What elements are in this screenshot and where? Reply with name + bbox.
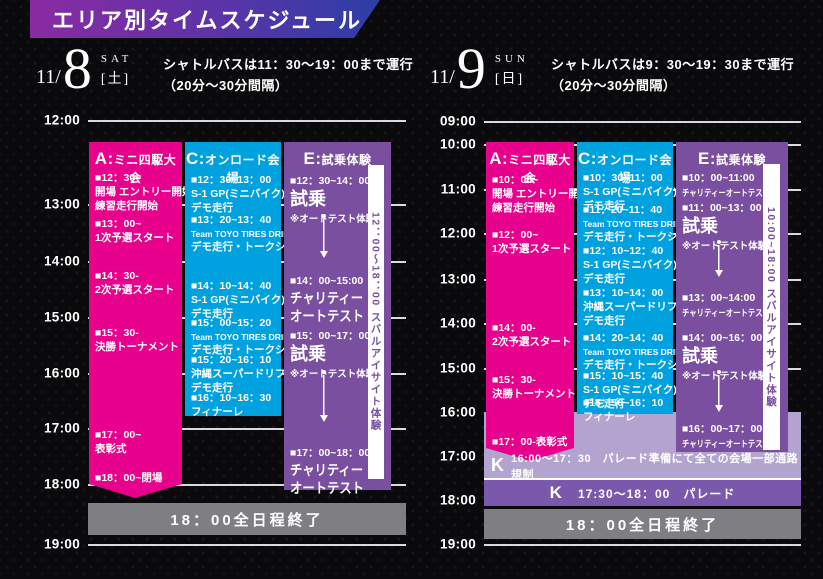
event: ■10：00~11:00チャリティーオートテスト	[682, 170, 762, 199]
shuttle-line1: シャトルバスは9：30～19：30まで運行	[551, 54, 794, 75]
subaru-eyesight-strip-sun: 10:00~18:00 スバルアイサイト体験	[763, 164, 780, 450]
area-a-column-sat: A:ミニ四駆大会 ■12：30~開場 エントリー開始 練習走行開始 ■13：00…	[89, 142, 182, 484]
event-time: ■17：00-表彰式	[492, 434, 570, 449]
grid-line	[484, 121, 801, 123]
event: ■13：00~14:00チャリティーオートテスト	[682, 290, 762, 319]
event-time: ■10：00~11:00	[682, 170, 762, 185]
event: ■17：00~18：00チャリティー オートテスト	[290, 445, 365, 497]
event-desc-en: Team TOYO TIRES DRIFT	[583, 218, 669, 231]
event: ■14：20~14：40Team TOYO TIRES DRIFTデモ走行・トー…	[583, 330, 669, 373]
footer-text: 18：00全日程終了	[170, 509, 323, 530]
down-arrow-icon	[712, 370, 726, 412]
grid-line	[484, 544, 801, 546]
event-time: ■13：10~14：00	[583, 285, 669, 300]
event-time: ■14：20~14：40	[583, 330, 669, 345]
subaru-eyesight-strip-sat: 12：00～18：00 スバルアイサイト体験	[368, 165, 384, 479]
event-desc-en: Team TOYO TIRES DRIFT	[191, 228, 277, 241]
hour-label: 13:00	[30, 197, 80, 212]
event-time: ■15：30-	[492, 372, 570, 387]
event-desc: S-1 GP(ミニバイク) デモ走行	[583, 259, 669, 287]
event-title: 試乗	[290, 344, 365, 366]
event-title: 試乗	[290, 189, 365, 211]
event-desc: 表彰式	[95, 443, 178, 457]
dow-en: SAT	[101, 53, 133, 65]
event-title: 試乗	[682, 216, 762, 238]
date-number: 9	[457, 46, 486, 92]
event-desc: 決勝トーナメント	[95, 341, 178, 355]
event: ■12：30~13：00S-1 GP(ミニバイク) デモ走行	[191, 172, 277, 216]
event: ■15：30-決勝トーナメント	[95, 325, 178, 355]
hour-label: 17:00	[30, 421, 80, 436]
event-time: ■14：00~15:00	[290, 273, 365, 288]
event-desc: 決勝トーナメント	[492, 388, 570, 402]
event-time: ■14：10~14：40	[191, 278, 277, 293]
event-desc-en: Team TOYO TIRES DRIFT	[583, 346, 669, 359]
event-desc: 沖縄スーパードリフト デモ走行	[583, 301, 669, 329]
down-arrow-icon	[712, 240, 726, 277]
area-letter: A:	[95, 149, 114, 168]
event-title: チャリティー オートテスト	[290, 461, 356, 497]
k-parade-text: 17:30～18：00 パレード	[578, 485, 735, 502]
event: ■13：10~14：00沖縄スーパードリフト デモ走行	[583, 285, 669, 329]
footer-text: 18：00全日程終了	[566, 514, 719, 535]
event: ■12：10~12：40S-1 GP(ミニバイク) デモ走行	[583, 243, 669, 287]
event-time: ■12：00~	[492, 227, 570, 242]
event: ■14：30-2次予選スタート	[95, 268, 178, 298]
event-time: ■18：00~閉場	[95, 470, 178, 485]
shuttle-note-sun: シャトルバスは9：30～19：30まで運行 （20分～30分間隔）	[551, 54, 794, 97]
hour-label: 18:00	[426, 493, 476, 508]
event-time: ■15：30-	[95, 325, 178, 340]
area-e-column-sun: E:試乗体験 ■10：00~11:00チャリティーオートテスト ■11：00~1…	[676, 142, 788, 452]
dow-en: SUN	[495, 53, 529, 65]
date-sun: 11/ 9 SUN [日]	[430, 46, 529, 92]
down-arrow-icon	[317, 370, 331, 422]
k-letter: K	[491, 455, 504, 476]
shuttle-line2: （20分～30分間隔）	[551, 75, 794, 96]
day-of-week: SUN [日]	[495, 53, 529, 88]
hour-label: 12:00	[426, 226, 476, 241]
footer-bar-sun: 18：00全日程終了	[484, 509, 801, 539]
event-time: ■15：00~15：20	[191, 315, 277, 330]
hour-label: 16:00	[30, 366, 80, 381]
day-of-week: SAT [土]	[101, 53, 133, 88]
event-desc: チャリティーオートテスト	[682, 186, 748, 199]
event-desc: 1次予選スタート	[95, 232, 178, 246]
area-e-column-sat: E:試乗体験 ■12：30~14：00試乗※オートテスト体験 ■14：00~15…	[284, 142, 391, 490]
event-time: ■14：00-	[492, 320, 570, 335]
hour-label: 10:00	[426, 137, 476, 152]
hour-label: 16:00	[426, 405, 476, 420]
dow-jp: [土]	[101, 68, 133, 88]
event-time: ■16：10~16：30	[191, 390, 277, 405]
grid-line	[88, 120, 406, 122]
event-time: ■17：00~	[95, 427, 178, 442]
title-banner: エリア別タイムスケジュール	[30, 0, 380, 38]
event-time: ■12：30~	[95, 170, 178, 185]
event-desc: デモ走行・トークショー	[191, 241, 277, 255]
event-desc: フィナーレ	[191, 406, 277, 420]
area-name: 試乗体験	[716, 153, 766, 167]
event-desc: 開場 エントリー開始 練習走行開始	[492, 188, 570, 216]
grid-line	[88, 544, 406, 546]
down-arrow-icon	[317, 214, 331, 258]
event-time: ■13：20~13：40	[191, 212, 277, 227]
event-time: ■10：30~11：00	[583, 170, 669, 185]
event-desc: 1次予選スタート	[492, 243, 570, 257]
area-letter: E:	[698, 149, 716, 168]
hour-label: 09:00	[426, 114, 476, 129]
event-time: ■13：00~14:00	[682, 290, 762, 305]
event-time: ■11：00~13：00	[682, 200, 762, 215]
event-time: ■16：00~17：00	[682, 421, 762, 436]
area-c-column-sat: C:オンロード会場 ■12：30~13：00S-1 GP(ミニバイク) デモ走行…	[185, 142, 281, 416]
date-number: 8	[63, 46, 92, 92]
area-letter: C:	[578, 149, 597, 168]
parade-prep-notice-bar: K 16:00～17：30 パレード準備にて全ての会場一部通路規制	[484, 454, 801, 477]
shuttle-note-sat: シャトルバスは11：30～19：00まで運行 （20分～30分間隔）	[163, 54, 413, 97]
event-time: ■17：00~18：00	[290, 445, 365, 460]
event-desc: チャリティーオートテスト	[682, 306, 748, 319]
area-c-column-sun: C:オンロード会場 ■10：30~11：00S-1 GP(ミニバイク) デモ走行…	[577, 142, 673, 414]
footer-bar-sat: 18：00全日程終了	[88, 503, 406, 535]
hour-label: 15:00	[30, 310, 80, 325]
event-title: 試乗	[682, 346, 762, 368]
event-time: ■14：00~16：00	[682, 330, 762, 345]
hour-label: 14:00	[426, 316, 476, 331]
event-time: ■14：30-	[95, 268, 178, 283]
event: ■12：30~開場 エントリー開始 練習走行開始	[95, 170, 178, 214]
pink-column-tail-icon	[89, 484, 182, 498]
page-title: エリア別タイムスケジュール	[52, 3, 362, 35]
hour-label: 19:00	[30, 537, 80, 552]
event: ■12：00~1次予選スタート	[492, 227, 570, 257]
event-time: ■12：10~12：40	[583, 243, 669, 258]
k-letter: K	[550, 483, 562, 503]
event: ■16：10~16：30フィナーレ	[191, 390, 277, 420]
area-letter: C:	[186, 149, 205, 168]
area-letter: A:	[489, 149, 508, 168]
event-time: ■12：30~13：00	[191, 172, 277, 187]
event-time: ■15：00~17：00	[290, 328, 365, 343]
event-time: ■12：30~14：00	[290, 173, 365, 188]
event-time: ■15：50~16：10	[583, 395, 669, 410]
hour-label: 11:00	[426, 182, 476, 197]
shuttle-line2: （20分～30分間隔）	[163, 75, 413, 96]
area-letter: E:	[303, 149, 321, 168]
event-title: チャリティー オートテスト	[290, 289, 356, 325]
hour-label: 13:00	[426, 272, 476, 287]
event: ■14：00-2次予選スタート	[492, 320, 570, 350]
date-prefix: 11/	[36, 67, 61, 87]
event: ■10：00~開場 エントリー開始 練習走行開始	[492, 172, 570, 216]
event: ■15：30-決勝トーナメント	[492, 372, 570, 402]
event: ■16：00~17：00チャリティーオートテスト	[682, 421, 762, 450]
event: ■17：00~表彰式	[95, 427, 178, 457]
hour-label: 19:00	[426, 537, 476, 552]
parade-bar: K 17:30～18：00 パレード	[484, 478, 801, 506]
k-notice-text: 16:00～17：30 パレード準備にて全ての会場一部通路規制	[511, 450, 801, 482]
event-time: ■10：00~	[492, 172, 570, 187]
area-a-column-sun: A:ミニ四駆大会 ■10：00~開場 エントリー開始 練習走行開始 ■12：00…	[486, 142, 574, 448]
area-name: 試乗体験	[321, 153, 371, 167]
hour-label: 12:00	[30, 113, 80, 128]
event-desc: フィナーレ	[583, 411, 669, 425]
event: ■13：20~13：40Team TOYO TIRES DRIFTデモ走行・トー…	[191, 212, 277, 255]
event-desc: 2次予選スタート	[492, 336, 570, 350]
date-prefix: 11/	[430, 67, 455, 87]
hour-label: 18:00	[30, 477, 80, 492]
event-time: ■15：10~15：40	[583, 368, 669, 383]
event: ■15：50~16：10フィナーレ	[583, 395, 669, 425]
date-sat: 11/ 8 SAT [土]	[36, 46, 132, 92]
hour-label: 15:00	[426, 361, 476, 376]
event-time: ■11：20~11：40	[583, 202, 669, 217]
event-desc-en: Team TOYO TIRES DRIFT	[191, 331, 277, 344]
event: ■13：00~1次予選スタート	[95, 216, 178, 246]
event: ■14：00~15:00チャリティー オートテスト	[290, 273, 365, 325]
hour-label: 17:00	[426, 449, 476, 464]
shuttle-line1: シャトルバスは11：30～19：00まで運行	[163, 54, 413, 75]
hour-label: 14:00	[30, 254, 80, 269]
event-desc: 2次予選スタート	[95, 284, 178, 298]
event-time: ■13：00~	[95, 216, 178, 231]
event-desc: チャリティーオートテスト	[682, 437, 748, 450]
event: ■11：20~11：40Team TOYO TIRES DRIFTデモ走行・トー…	[583, 202, 669, 245]
event-time: ■15：20~16：10	[191, 352, 277, 367]
dow-jp: [日]	[495, 68, 529, 88]
event-desc: 開場 エントリー開始 練習走行開始	[95, 186, 178, 214]
